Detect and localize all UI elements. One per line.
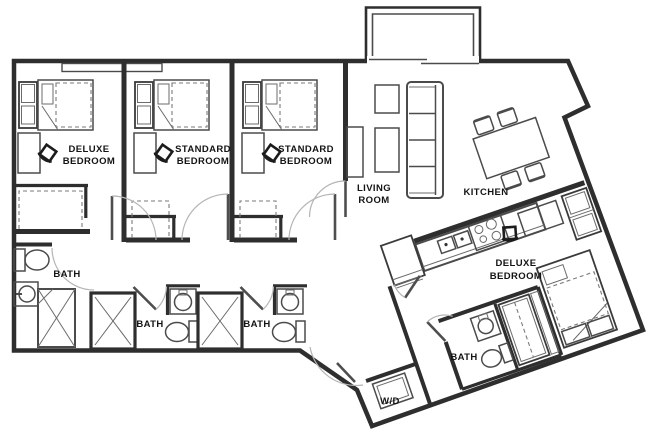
room-label-bedroom4-line1: DELUXE: [496, 258, 537, 269]
room-label-bedroom3-line2: BEDROOM: [280, 156, 332, 167]
room-label-bath3: BATH: [243, 319, 270, 330]
room-label-living-line1: LIVING: [357, 183, 391, 194]
room-label-bath4: BATH: [450, 352, 477, 363]
top-wall-recess: [62, 64, 162, 72]
room-label-living-line2: ROOM: [358, 195, 389, 206]
room-label-bedroom1-line1: DELUXE: [69, 144, 110, 155]
room-label-bath2: BATH: [136, 319, 163, 330]
room-label-laundry: W/D: [380, 396, 400, 407]
floor-plan: DELUXE BEDROOM STANDARD BEDROOM STANDARD…: [0, 0, 650, 438]
floor-plan-page: DELUXE BEDROOM STANDARD BEDROOM STANDARD…: [0, 0, 650, 438]
room-label-bedroom3-line1: STANDARD: [278, 144, 334, 155]
room-label-kitchen: KITCHEN: [463, 187, 508, 198]
room-label-bedroom2-line1: STANDARD: [175, 144, 231, 155]
room-label-bath1: BATH: [53, 269, 80, 280]
room-label-bedroom4-line2: BEDROOM: [490, 271, 542, 282]
room-label-bedroom2-line2: BEDROOM: [177, 156, 229, 167]
balcony-outer-wall: [366, 8, 480, 64]
balcony: [366, 8, 480, 64]
room-label-bedroom1-line2: BEDROOM: [63, 156, 115, 167]
exterior-walls: [14, 61, 643, 426]
balcony-opening: [367, 56, 479, 66]
